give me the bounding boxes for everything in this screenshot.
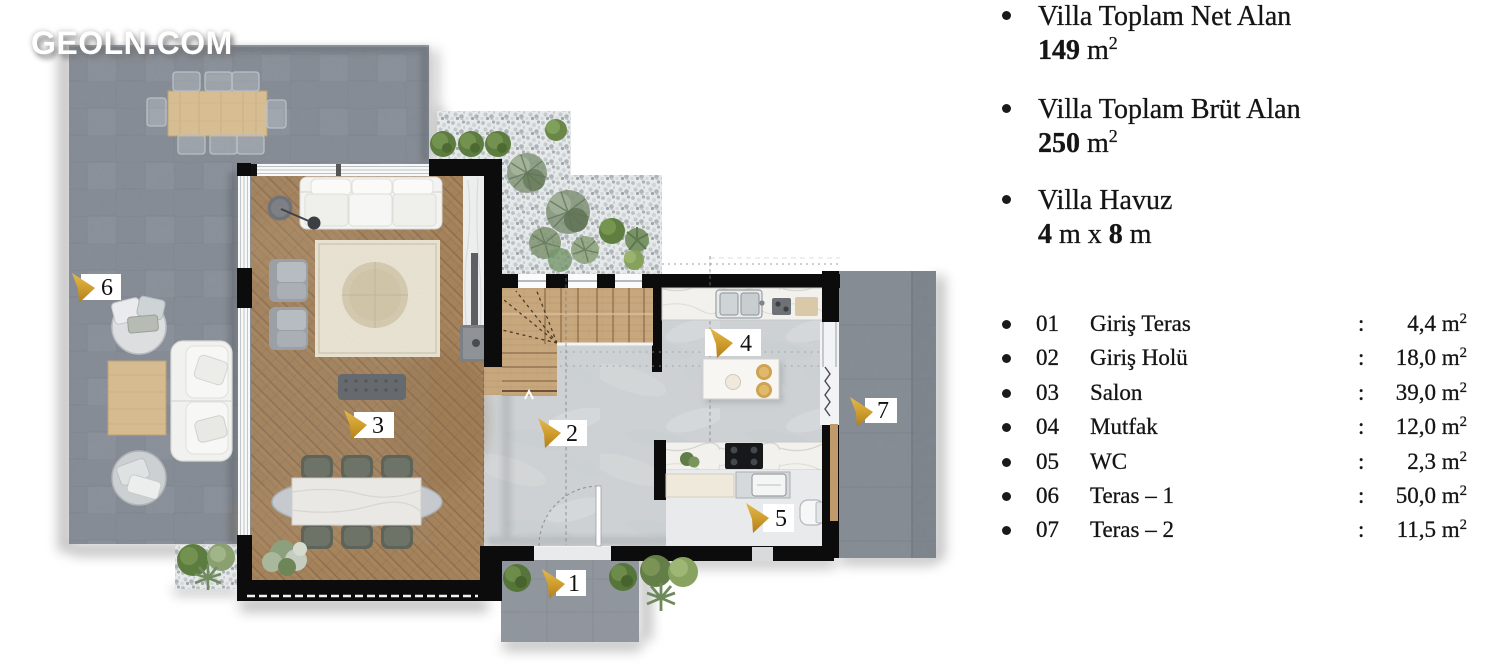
- svg-text:7: 7: [877, 398, 889, 424]
- svg-text:3: 3: [372, 413, 384, 439]
- svg-text:5: 5: [775, 506, 787, 532]
- svg-text:2: 2: [566, 421, 578, 447]
- svg-text:6: 6: [101, 275, 113, 301]
- svg-text:4: 4: [740, 331, 752, 357]
- svg-text:1: 1: [568, 571, 580, 597]
